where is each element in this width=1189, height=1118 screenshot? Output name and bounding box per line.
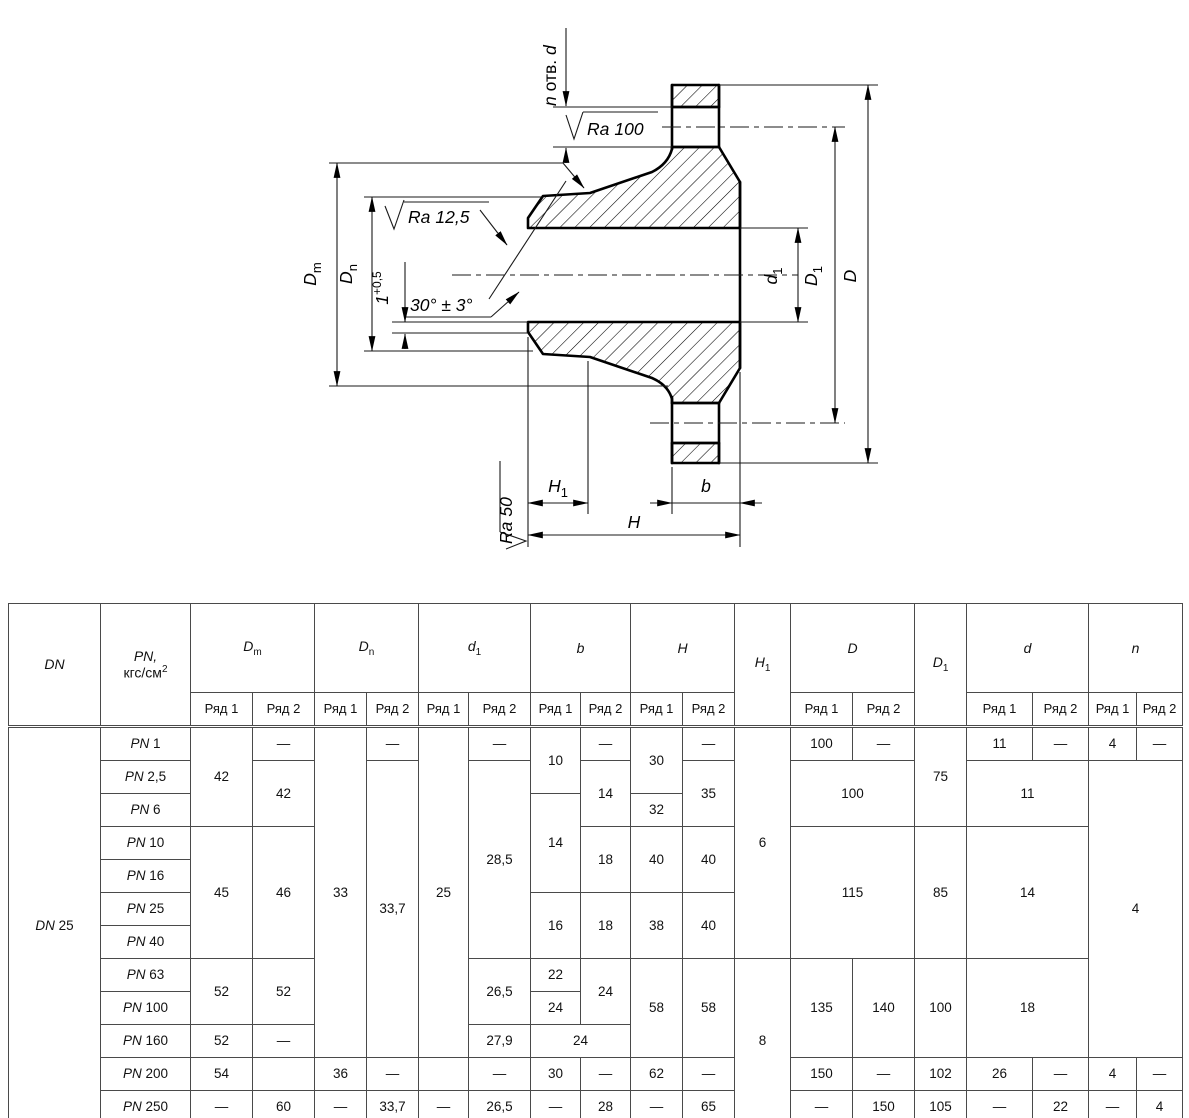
cell: — <box>683 727 735 761</box>
cell: PN 16 <box>101 860 191 893</box>
cell: 22 <box>531 959 581 992</box>
leader-neck <box>563 163 584 188</box>
label-h1: H1 <box>548 476 568 500</box>
extension-lines <box>329 85 878 547</box>
page: Ra12,5 Ra100 Ra50 n отв. d 30° ± 3° 1+0,… <box>0 0 1189 1118</box>
cell: 18 <box>581 827 631 893</box>
cell: 36 <box>315 1058 367 1091</box>
cell: 6 <box>735 727 791 959</box>
cell: 14 <box>581 761 631 827</box>
cell: 42 <box>191 727 253 827</box>
cell: — <box>253 727 315 761</box>
cell: 4 <box>1137 1091 1183 1118</box>
header-cell: Ряд 1 <box>791 693 853 727</box>
cell: 4 <box>1089 1058 1137 1091</box>
cell: 26,5 <box>469 959 531 1025</box>
flange-edges <box>672 85 740 463</box>
ra100-label: Ra100 <box>587 119 644 139</box>
cell: PN 10 <box>101 827 191 860</box>
cell: 32 <box>631 794 683 827</box>
cell: 33,7 <box>367 761 419 1058</box>
header-cell: Ряд 2 <box>253 693 315 727</box>
cell: — <box>967 1091 1033 1118</box>
cell: 35 <box>683 761 735 827</box>
cell: 4 <box>1089 761 1183 1058</box>
dimension-lines <box>337 28 868 535</box>
ra125-leader <box>480 210 507 245</box>
header-cell: Ряд 1 <box>419 693 469 727</box>
cell: — <box>581 727 631 761</box>
cell: — <box>683 1058 735 1091</box>
cell: 27,9 <box>469 1025 531 1058</box>
cell: — <box>1033 1058 1089 1091</box>
header-cell: d1 <box>419 604 531 693</box>
dimension-table: DNPN,кгс/см2DmDnd1bHH1DD1dnРяд 1Ряд 2Ряд… <box>8 603 1183 1118</box>
cell: PN 6 <box>101 794 191 827</box>
label-dd: D <box>840 269 860 282</box>
label-dm: Dm <box>300 262 324 285</box>
cell: 58 <box>631 959 683 1058</box>
header-cell: d <box>967 604 1089 693</box>
cell: 60 <box>253 1091 315 1118</box>
cell: 140 <box>853 959 915 1058</box>
cell: 58 <box>683 959 735 1058</box>
cell: 40 <box>683 893 735 959</box>
cell: 42 <box>253 761 315 827</box>
label-dd1: D1 <box>801 266 825 286</box>
cell: — <box>1137 727 1183 761</box>
cell: PN 2,5 <box>101 761 191 794</box>
cell: PN 63 <box>101 959 191 992</box>
cell: 52 <box>253 959 315 1025</box>
cell: 22 <box>1033 1091 1089 1118</box>
header-cell: Ряд 2 <box>581 693 631 727</box>
table-header: DNPN,кгс/см2DmDnd1bHH1DD1dnРяд 1Ряд 2Ряд… <box>9 604 1183 727</box>
header-cell: Ряд 2 <box>683 693 735 727</box>
cell: — <box>1089 1091 1137 1118</box>
cell: 24 <box>531 1025 631 1058</box>
cell: 16 <box>531 893 581 959</box>
ra50-label: Ra50 <box>496 497 516 544</box>
ra100-check-icon <box>566 112 583 139</box>
bevel-angle-label: 30° ± 3° <box>410 295 473 315</box>
header-cell: D <box>791 604 915 693</box>
cell: 46 <box>253 827 315 959</box>
cell: 33,7 <box>367 1091 419 1118</box>
cell: 26 <box>967 1058 1033 1091</box>
cell: 150 <box>853 1091 915 1118</box>
header-cell: Ряд 1 <box>631 693 683 727</box>
header-cell: Ряд 1 <box>191 693 253 727</box>
cell: — <box>791 1091 853 1118</box>
cell: 52 <box>191 959 253 1025</box>
flange-lower-body <box>528 322 740 403</box>
cell: PN 25 <box>101 893 191 926</box>
header-cell: DN <box>9 604 101 727</box>
cell: PN 160 <box>101 1025 191 1058</box>
cell: — <box>631 1091 683 1118</box>
cell: 115 <box>791 827 915 959</box>
cell: 30 <box>531 1058 581 1091</box>
cell: 52 <box>191 1025 253 1058</box>
header-cell: n <box>1089 604 1183 693</box>
cell: 28,5 <box>469 761 531 959</box>
header-cell: Ряд 2 <box>367 693 419 727</box>
cell: 30 <box>631 727 683 794</box>
cell: 102 <box>915 1058 967 1091</box>
cell: 33 <box>315 727 367 1058</box>
flange-drawing: Ra12,5 Ra100 Ra50 n отв. d 30° ± 3° 1+0,… <box>0 0 1189 600</box>
flange-section <box>528 85 740 463</box>
holes-count-label: n отв. d <box>540 44 560 106</box>
cell: 135 <box>791 959 853 1058</box>
cell: 25 <box>419 727 469 1058</box>
cell: 14 <box>531 794 581 893</box>
cell: — <box>853 1058 915 1091</box>
header-cell: Ряд 1 <box>531 693 581 727</box>
ra125-label: Ra12,5 <box>408 207 470 227</box>
cell: 28 <box>581 1091 631 1118</box>
cell: 11 <box>967 761 1089 827</box>
ra125-check-icon <box>385 200 404 229</box>
cell: — <box>469 1058 531 1091</box>
header-cell: Ряд 2 <box>1033 693 1089 727</box>
header-cell: b <box>531 604 631 693</box>
cell <box>419 1058 469 1091</box>
cell: — <box>853 727 915 761</box>
cell: 8 <box>735 959 791 1118</box>
cell: DN 25 <box>9 727 101 1118</box>
drawing-labels: Ra12,5 Ra100 Ra50 n отв. d 30° ± 3° 1+0,… <box>300 44 860 544</box>
cell <box>253 1058 315 1091</box>
cell: 45 <box>191 827 253 959</box>
header-cell: D1 <box>915 604 967 727</box>
cell: — <box>1033 727 1089 761</box>
header-cell: PN,кгс/см2 <box>101 604 191 727</box>
cell: 85 <box>915 827 967 959</box>
cell: 75 <box>915 727 967 827</box>
cell: — <box>581 1058 631 1091</box>
label-b: b <box>701 476 711 496</box>
cell: — <box>367 727 419 761</box>
cell: 100 <box>791 761 915 827</box>
cell: PN 200 <box>101 1058 191 1091</box>
cell: PN 100 <box>101 992 191 1025</box>
cell: 62 <box>631 1058 683 1091</box>
cell: — <box>531 1091 581 1118</box>
cell: — <box>253 1025 315 1058</box>
cell: 40 <box>631 827 683 893</box>
label-d1: d1 <box>761 268 785 285</box>
header-cell: Dn <box>315 604 419 693</box>
angle-leader <box>491 292 519 317</box>
cell: — <box>1137 1058 1183 1091</box>
cell: — <box>469 727 531 761</box>
cell: PN 250 <box>101 1091 191 1118</box>
cell: 26,5 <box>469 1091 531 1118</box>
header-cell: Ряд 1 <box>967 693 1033 727</box>
cell: 10 <box>531 727 581 794</box>
flange-upper-body <box>528 147 740 228</box>
cell: 18 <box>581 893 631 959</box>
cell: 105 <box>915 1091 967 1118</box>
cell: 18 <box>967 959 1089 1058</box>
cell: 4 <box>1089 727 1137 761</box>
cell: 24 <box>581 959 631 1025</box>
header-cell: Ряд 1 <box>315 693 367 727</box>
header-cell: Ряд 1 <box>1089 693 1137 727</box>
cell: 40 <box>683 827 735 893</box>
cell: — <box>419 1091 469 1118</box>
header-cell: Ряд 2 <box>469 693 531 727</box>
cell: — <box>315 1091 367 1118</box>
header-cell: Ряд 2 <box>853 693 915 727</box>
header-cell: Dm <box>191 604 315 693</box>
cell: 38 <box>631 893 683 959</box>
label-h: H <box>628 512 641 532</box>
cell: 150 <box>791 1058 853 1091</box>
flange-top-ring <box>672 85 719 107</box>
cell: 11 <box>967 727 1033 761</box>
cell: — <box>191 1091 253 1118</box>
cell: 65 <box>683 1091 735 1118</box>
cell: 14 <box>967 827 1089 959</box>
cell: 100 <box>791 727 853 761</box>
cell: 100 <box>915 959 967 1058</box>
flange-bottom-ring <box>672 443 719 463</box>
cell: PN 40 <box>101 926 191 959</box>
cell: 24 <box>531 992 581 1025</box>
lip-dim-label: 1+0,5 <box>370 271 392 305</box>
cell: 54 <box>191 1058 253 1091</box>
cell: PN 1 <box>101 727 191 761</box>
header-cell: Ряд 2 <box>1137 693 1183 727</box>
center-lines <box>452 127 845 423</box>
table-body: DN 25PN 142—33—25—10—30—6100—7511—4—PN 2… <box>9 727 1183 1118</box>
header-cell: H <box>631 604 735 693</box>
label-dn: Dn <box>336 264 360 284</box>
cell: — <box>367 1058 419 1091</box>
header-cell: H1 <box>735 604 791 727</box>
